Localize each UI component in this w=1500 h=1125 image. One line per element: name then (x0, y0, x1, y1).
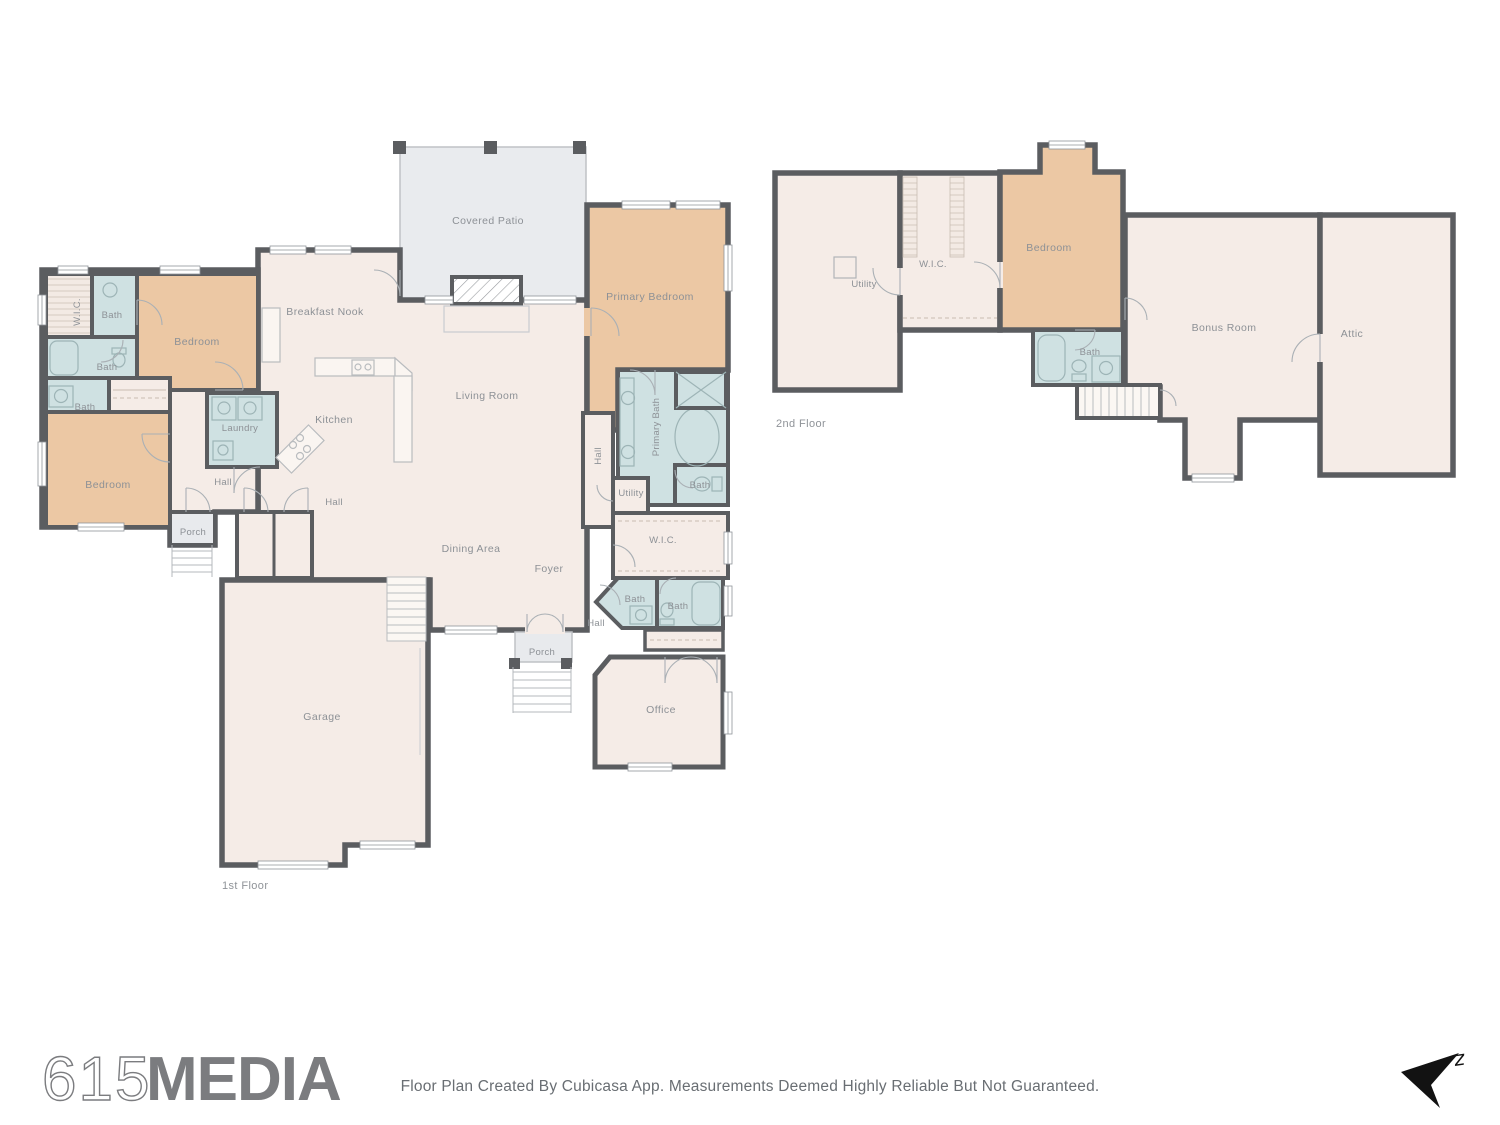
label-bath-sl: Bath (75, 402, 96, 413)
label-hall-right: Hall (593, 447, 604, 465)
wic-left-area (46, 274, 92, 337)
label-bath-f1: Bath (625, 594, 646, 605)
label-bedroom-top: Bedroom (174, 336, 219, 348)
disclaimer-text: Floor Plan Created By Cubicasa App. Meas… (0, 1078, 1500, 1096)
label-bedroom-bottom: Bedroom (85, 479, 130, 491)
bedroom2-area (1000, 145, 1123, 330)
floorplan-page: Covered Patio Primary Bedroom Breakfast … (0, 0, 1500, 1125)
label-dining-area: Dining Area (442, 543, 501, 555)
label-kitchen: Kitchen (315, 414, 353, 426)
label-laundry: Laundry (222, 423, 258, 434)
patio-post (393, 141, 406, 154)
label-hall-center: Hall (325, 497, 343, 508)
closet-left-area (109, 378, 170, 412)
label-bath-ml: Bath (97, 362, 118, 373)
label-living-room: Living Room (456, 390, 519, 402)
label-wic2: W.I.C. (919, 259, 947, 270)
label-porch-left: Porch (180, 527, 206, 538)
label-porch-front: Porch (529, 647, 555, 658)
compass-arrow-icon (1401, 1053, 1459, 1108)
label-primary-bath: Primary Bath (651, 398, 662, 457)
label-garage: Garage (303, 711, 340, 723)
porch-post (561, 658, 572, 669)
label-hall-left: Hall (214, 477, 232, 488)
bonus-room-area (1125, 215, 1320, 478)
label-bonus-room: Bonus Room (1192, 322, 1257, 334)
label-office: Office (646, 704, 676, 716)
bedroom-bottom-area (46, 412, 170, 527)
utility2-area (775, 173, 900, 390)
fireplace (452, 277, 521, 304)
compass-north-label: z (1451, 1046, 1466, 1071)
patio-post (573, 141, 586, 154)
bath-top-left-area (92, 274, 137, 337)
label-bath-f2: Bath (668, 601, 689, 612)
bedroom-top-area (137, 274, 258, 390)
shower (676, 372, 726, 408)
floor2-title: 2nd Floor (776, 418, 826, 430)
wic2-shelf (903, 177, 917, 257)
label-hall-foyer: Hall (587, 618, 605, 629)
label-breakfast-nook: Breakfast Nook (286, 306, 364, 318)
attic-area (1320, 215, 1453, 475)
hall-right-area (583, 413, 613, 527)
label-bath-ps: Bath (690, 480, 711, 491)
porch-post (509, 658, 520, 669)
label-bath-tl: Bath (102, 310, 123, 321)
floor1-plan: Covered Patio Primary Bedroom Breakfast … (38, 141, 732, 892)
label-utility1: Utility (618, 488, 643, 499)
left-steps (172, 545, 212, 577)
floorplan-canvas: Covered Patio Primary Bedroom Breakfast … (0, 0, 1500, 1125)
stairs-2f (1077, 385, 1160, 418)
label-wic-left: W.I.C. (72, 298, 83, 326)
front-steps (513, 667, 571, 713)
wic2-shelf (950, 177, 964, 257)
label-wic-right: W.I.C. (649, 535, 677, 546)
bath2-area (1033, 330, 1123, 385)
label-bedroom2: Bedroom (1026, 242, 1071, 254)
floor1-title: 1st Floor (222, 880, 268, 892)
compass-north-arrow: z (1393, 1042, 1478, 1117)
label-foyer: Foyer (535, 563, 564, 575)
floor2-plan: Utility W.I.C. Bedroom Bath Bonus Room A… (775, 141, 1453, 482)
label-utility2: Utility (851, 279, 876, 290)
label-covered-patio: Covered Patio (452, 215, 524, 227)
label-primary-bedroom: Primary Bedroom (606, 291, 694, 303)
patio-post (484, 141, 497, 154)
label-bath2: Bath (1080, 347, 1101, 358)
office-closet (645, 630, 723, 650)
label-attic: Attic (1341, 328, 1363, 340)
